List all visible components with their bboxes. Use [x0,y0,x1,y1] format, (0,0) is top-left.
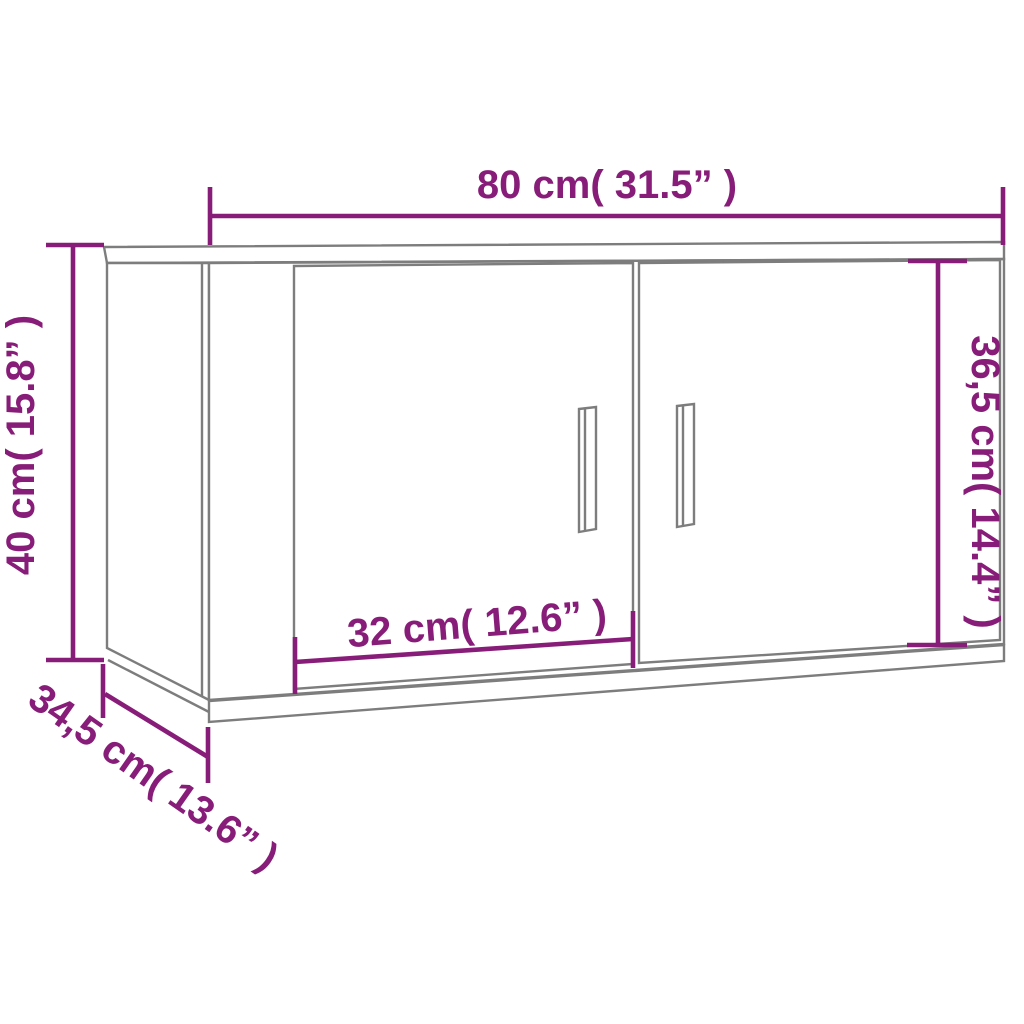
height-dimension-label: 40 cm( 15.8” ) [0,315,43,575]
cabinet-dimension-drawing: 80 cm( 31.5” ) 40 cm( 15.8” ) 36,5 cm( 1… [0,0,1024,1024]
cabinet-outline [104,242,1004,722]
right-door-handle-bar [677,404,694,527]
width-dimension-label: 80 cm( 31.5” ) [477,163,737,207]
cabinet-side-panel [107,263,209,700]
right-door-handle [677,404,694,527]
left-door-handle-bar [579,407,596,532]
product-dimension-diagram: 80 cm( 31.5” ) 40 cm( 15.8” ) 36,5 cm( 1… [0,0,1024,1024]
inner-height-dimension-label: 36,5 cm( 14.4” ) [963,335,1007,629]
dimension-height [46,245,104,660]
left-door-handle [579,407,596,532]
